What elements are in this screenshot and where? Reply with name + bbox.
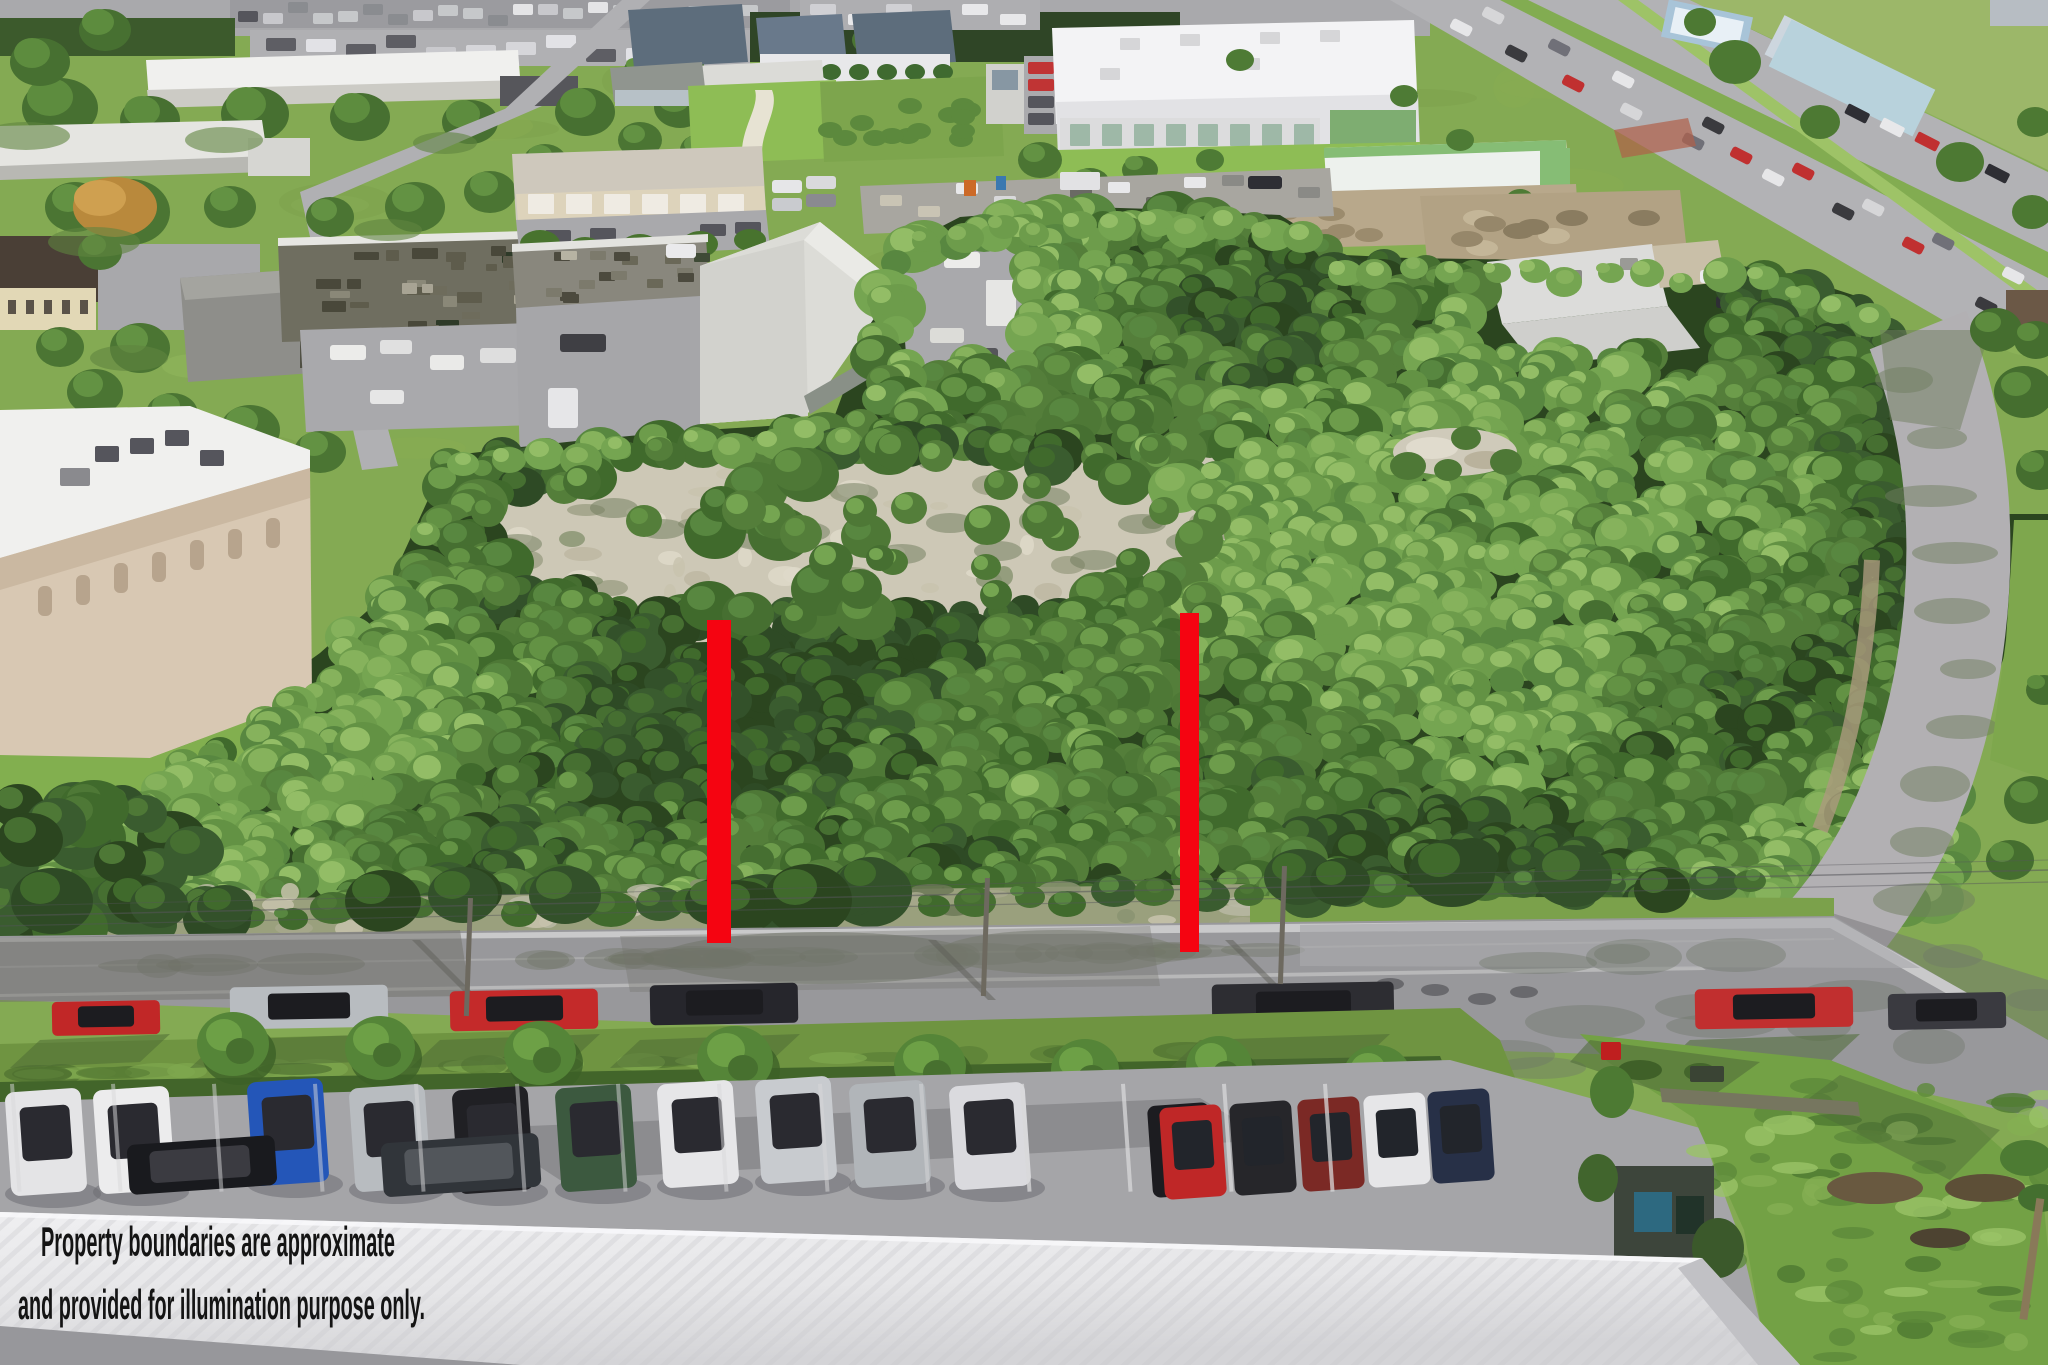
svg-text:and provided for illumination: and provided for illumination purpose on…: [18, 1281, 425, 1328]
svg-text:Property boundaries are approx: Property boundaries are approximate: [41, 1218, 395, 1265]
